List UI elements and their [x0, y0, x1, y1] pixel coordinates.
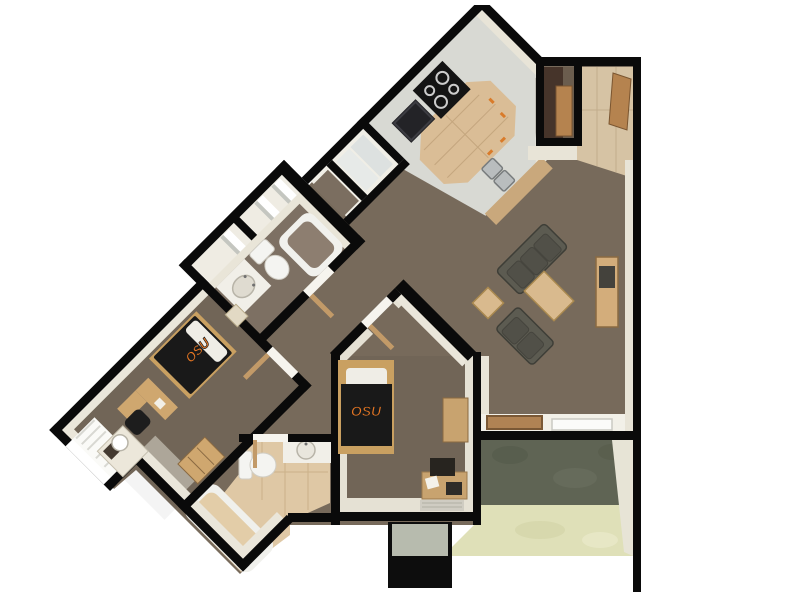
svg-text:OSU: OSU [351, 403, 382, 419]
